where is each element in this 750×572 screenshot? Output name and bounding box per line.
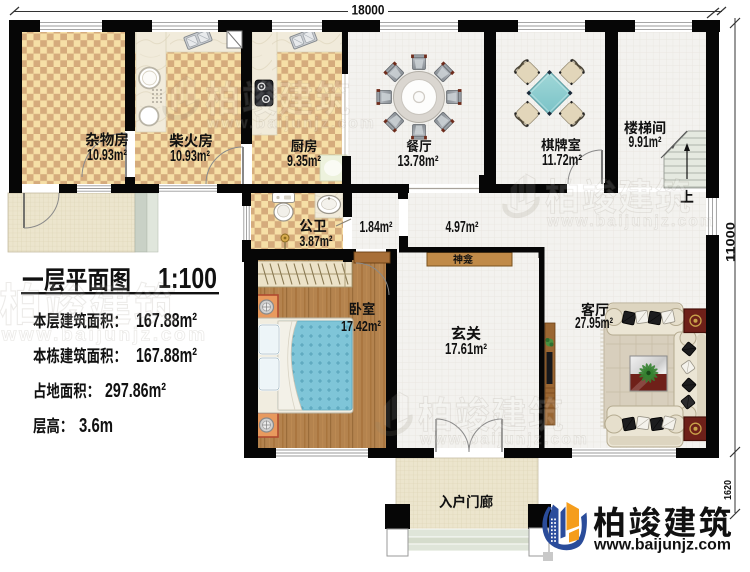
svg-text:11000: 11000 (726, 222, 738, 262)
svg-text:1620: 1620 (722, 480, 734, 500)
svg-text:297.86m²: 297.86m² (105, 380, 166, 402)
svg-text:10.93m²: 10.93m² (87, 147, 127, 164)
svg-text:9.35m²: 9.35m² (287, 153, 321, 170)
svg-text:27.95m²: 27.95m² (575, 315, 613, 332)
svg-text:10.93m²: 10.93m² (170, 148, 210, 165)
svg-text:3.6m: 3.6m (79, 415, 113, 437)
svg-text:18000: 18000 (352, 2, 385, 18)
svg-text:9.91m²: 9.91m² (629, 134, 662, 151)
svg-text:www.baijunjz.com: www.baijunjz.com (593, 537, 731, 554)
svg-text:11.72m²: 11.72m² (542, 152, 582, 169)
svg-text:167.88m²: 167.88m² (136, 345, 197, 367)
svg-text:4.97m²: 4.97m² (446, 219, 479, 236)
svg-text:17.61m²: 17.61m² (445, 341, 487, 358)
svg-text:17.42m²: 17.42m² (341, 318, 381, 335)
svg-text:3.87m²: 3.87m² (300, 233, 333, 250)
svg-text:1.84m²: 1.84m² (360, 219, 393, 236)
svg-text:13.78m²: 13.78m² (398, 153, 439, 170)
